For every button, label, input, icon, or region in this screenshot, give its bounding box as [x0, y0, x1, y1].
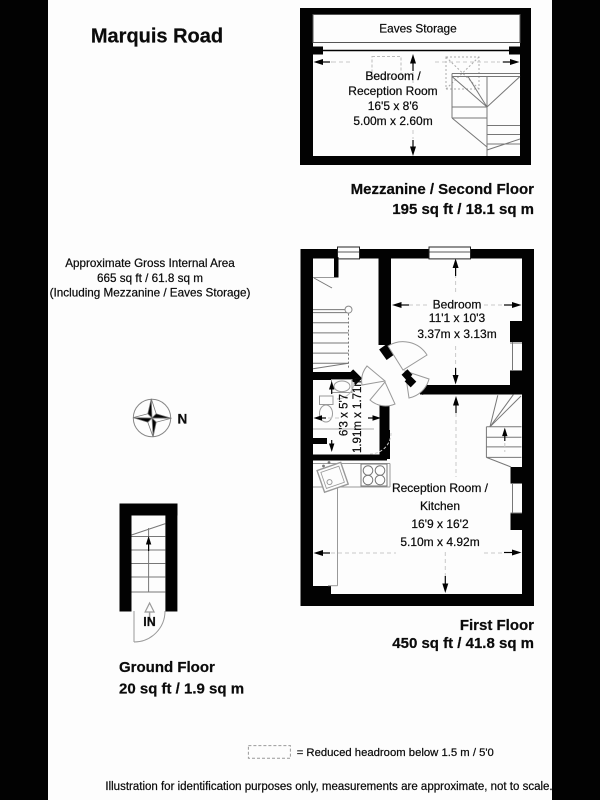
- svg-text:= Reduced headroom below 1.5: = Reduced headroom below 1.5 m / 5'0: [297, 747, 494, 759]
- svg-text:665 sq ft / 61.8 sq m: 665 sq ft / 61.8 sq m: [97, 272, 203, 285]
- svg-text:16'5 x 8'6: 16'5 x 8'6: [368, 99, 419, 113]
- svg-text:5.10m x 4.92m: 5.10m x 4.92m: [400, 535, 479, 549]
- svg-text:Bedroom /: Bedroom /: [365, 69, 421, 83]
- svg-text:First Floor: First Floor: [460, 617, 534, 634]
- svg-text:450 sq ft / 41.8 sq m: 450 sq ft / 41.8 sq m: [392, 635, 534, 652]
- svg-text:Bedroom: Bedroom: [433, 298, 482, 312]
- svg-text:Ground Floor: Ground Floor: [119, 659, 215, 676]
- svg-text:1.91m x 1.71m: 1.91m x 1.71m: [352, 377, 364, 453]
- svg-text:20 sq ft / 1.9 sq m: 20 sq ft / 1.9 sq m: [119, 681, 244, 698]
- svg-text:16'9 x 16'2: 16'9 x 16'2: [411, 517, 469, 531]
- svg-text:(Including Mezzanine / Eaves S: (Including Mezzanine / Eaves Storage): [50, 287, 251, 300]
- svg-text:Kitchen: Kitchen: [420, 499, 460, 513]
- svg-text:Eaves Storage: Eaves Storage: [379, 22, 457, 36]
- svg-text:6'3 x 5'7: 6'3 x 5'7: [339, 394, 351, 436]
- svg-text:IN: IN: [143, 615, 156, 629]
- svg-text:11'1 x 10'3: 11'1 x 10'3: [429, 311, 486, 325]
- svg-text:195 sq ft / 18.1 sq m: 195 sq ft / 18.1 sq m: [392, 201, 534, 218]
- svg-text:5.00m x 2.60m: 5.00m x 2.60m: [353, 114, 432, 128]
- svg-text:Illustration for identificatio: Illustration for identification purposes…: [105, 781, 552, 793]
- svg-text:Marquis Road: Marquis Road: [91, 26, 223, 48]
- svg-text:Mezzanine / Second Floor: Mezzanine / Second Floor: [351, 181, 535, 198]
- svg-text:N: N: [178, 412, 188, 427]
- svg-text:Reception Room: Reception Room: [348, 84, 437, 98]
- svg-text:Approximate Gross Internal Are: Approximate Gross Internal Area: [65, 257, 235, 270]
- svg-text:3.37m x 3.13m: 3.37m x 3.13m: [417, 327, 496, 341]
- svg-text:Reception Room /: Reception Room /: [392, 481, 489, 495]
